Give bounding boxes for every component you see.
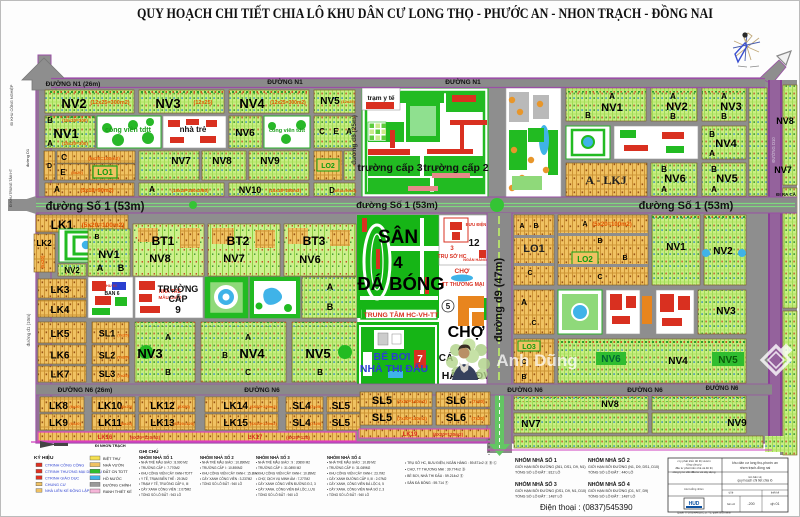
svg-text:NHÓM NHÀ SỐ 1: NHÓM NHÀ SỐ 1 (139, 455, 173, 460)
svg-text:ĐẤT CN TDTT: ĐẤT CN TDTT (103, 470, 128, 474)
svg-text:ĐƯỜNG D10: ĐƯỜNG D10 (771, 137, 776, 163)
svg-text:A - LKJ: A - LKJ (585, 173, 626, 187)
svg-text:NHÓM NHÀ SỐ 3: NHÓM NHÀ SỐ 3 (515, 480, 557, 488)
svg-text:NHÓM NHÀ SỐ 2: NHÓM NHÀ SỐ 2 (200, 455, 234, 460)
svg-text:trạm y tế: trạm y tế (367, 94, 394, 102)
svg-text:quy hoạch chi tiết chia lô: quy hoạch chi tiết chia lô (738, 479, 773, 483)
svg-text:TỔNG SỐ LÔ ĐẤT : 812 LÔ: TỔNG SỐ LÔ ĐẤT : 812 LÔ (515, 470, 560, 475)
svg-text:nhà trẻ: nhà trẻ (180, 125, 207, 134)
svg-text:GIỚI HẠN BỞI ĐƯỜNG (DS1, D9, N: GIỚI HẠN BỞI ĐƯỜNG (DS1, D9, N1, D10) (515, 488, 586, 493)
svg-text:B: B (317, 368, 323, 377)
svg-text:RANH THIẾT KẾ: RANH THIẾT KẾ (103, 489, 132, 494)
svg-text:Điện thoại : (0837)545390: Điện thoại : (0837)545390 (540, 503, 633, 512)
svg-text:LK7: LK7 (51, 370, 70, 381)
svg-text:• KHU CÔNG VIÊN CÂY XANH : 23.: • KHU CÔNG VIÊN CÂY XANH : 23.7M2 (327, 470, 385, 475)
svg-text:(5x20=100m2): (5x20=100m2) (592, 222, 632, 228)
svg-text:A: A (609, 92, 615, 101)
svg-text:A: A (97, 263, 104, 273)
svg-text:NV8: NV8 (212, 156, 232, 167)
svg-text:ĐƯỜNG N6: ĐƯỜNG N6 (706, 384, 739, 392)
svg-text:đường Số 1 (53m): đường Số 1 (53m) (46, 201, 145, 213)
svg-text:(6X20=120m2): (6X20=120m2) (433, 432, 464, 437)
svg-text:B: B (521, 374, 526, 381)
svg-text:(6X20): (6X20) (178, 404, 191, 409)
svg-text:E: E (60, 168, 66, 177)
svg-text:• TRƯỜNG CẤP I : 31.0890 M2: • TRƯỜNG CẤP I : 31.0890 M2 (256, 465, 301, 470)
svg-text:CẤP: CẤP (168, 294, 187, 304)
svg-text:D: D (47, 163, 52, 170)
svg-text:• NHÀ TRẺ MẪU GIÁO : 10.890M2: • NHÀ TRẺ MẪU GIÁO : 10.890M2 (200, 460, 250, 465)
svg-text:BAN 6: BAN 6 (104, 291, 119, 297)
svg-text:(7x20): (7x20) (310, 421, 322, 426)
svg-text:• TRƯỜNG CẤP I : 7.770M2: • TRƯỜNG CẤP I : 7.770M2 (139, 465, 180, 470)
svg-text:A: A (54, 185, 60, 194)
svg-text:SL5: SL5 (372, 412, 392, 424)
svg-text:LK19: LK19 (403, 432, 418, 438)
svg-text:BỂ BƠI: BỂ BƠI (374, 350, 411, 363)
svg-text:C: C (61, 153, 67, 162)
svg-text:ĐƯỜNG N1: ĐƯỜNG N1 (445, 77, 481, 86)
svg-text:ĐÁ BÓNG: ĐÁ BÓNG (357, 273, 444, 294)
svg-text:ĐI NHƠN TRẠCH: ĐI NHƠN TRẠCH (95, 444, 126, 448)
svg-text:LK15: LK15 (223, 418, 248, 429)
svg-text:A: A (670, 92, 676, 101)
svg-text:NV10: NV10 (239, 185, 262, 195)
svg-text:SL4: SL4 (292, 418, 311, 429)
svg-text:A: A (711, 185, 717, 194)
svg-text:NHÓM NHÀ SỐ 2: NHÓM NHÀ SỐ 2 (588, 456, 630, 464)
svg-text:(8x18=90m2): (8x18=90m2) (334, 189, 358, 193)
svg-text:CHỢ: CHỢ (455, 268, 470, 275)
svg-text:đường d8 (25m): đường d8 (25m) (351, 115, 358, 165)
svg-text:(5x20=100m2): (5x20=100m2) (82, 222, 125, 229)
svg-text:NV4: NV4 (715, 138, 737, 150)
svg-text:A: A (661, 185, 667, 194)
svg-text:tỷ lệ: tỷ lệ (729, 491, 734, 495)
svg-text:NV1: NV1 (53, 126, 78, 141)
svg-text:(7x25): (7x25) (117, 333, 129, 338)
svg-text:B: B (622, 255, 627, 262)
svg-text:GIỚI HẠN BỞI ĐƯỜNG (D1, N7, D9: GIỚI HẠN BỞI ĐƯỜNG (D1, N7, D9) (588, 488, 648, 493)
svg-text:• TỔNG SỐ LÔ ĐẤT : 940 LÔ: • TỔNG SỐ LÔ ĐẤT : 940 LÔ (200, 481, 243, 486)
svg-text:• TRẠM Y TẾ, TRƯỜNG CẤP II, II: • TRẠM Y TẾ, TRƯỜNG CẤP II, III (139, 481, 189, 486)
svg-text:(5x18=90m2): (5x18=90m2) (80, 188, 113, 194)
svg-text:(7x25): (7x25) (117, 354, 129, 359)
svg-text:qh 01: qh 01 (771, 502, 780, 506)
svg-text:NV3: NV3 (716, 306, 736, 317)
svg-text:NHÓM NHÀ SỐ 4: NHÓM NHÀ SỐ 4 (588, 480, 630, 488)
svg-text:kts trưởng nhóm: kts trưởng nhóm (684, 487, 703, 491)
svg-text:(7x20=140m2): (7x20=140m2) (397, 416, 427, 421)
svg-text:SL6: SL6 (446, 412, 466, 424)
svg-text:• CHỢ, TT THƯƠNG MẠI : 39.774x: • CHỢ, TT THƯƠNG MẠI : 39.774x2 Ⓓ (405, 467, 466, 472)
svg-text:NV7: NV7 (774, 165, 792, 175)
svg-text:công ty tư vấn đầu tư và xây d: công ty tư vấn đầu tư và xây dựng (673, 470, 716, 474)
svg-text:SL5: SL5 (332, 401, 351, 412)
svg-text:BT2: BT2 (227, 234, 250, 248)
svg-text:THU VI: THU VI (103, 283, 116, 288)
svg-text:NV6: NV6 (664, 173, 685, 185)
svg-text:SÂN: SÂN (378, 226, 418, 248)
svg-text:• KHU CÔNG VIÊN CÂY XANH : 10.: • KHU CÔNG VIÊN CÂY XANH : 10.89M2 (256, 470, 316, 475)
svg-text:LO2: LO2 (321, 163, 335, 170)
svg-text:(5x20): (5x20) (40, 255, 45, 269)
svg-text:B: B (709, 130, 715, 139)
svg-text:A: A (709, 149, 715, 158)
svg-text:ĐƯỜNG N1: ĐƯỜNG N1 (267, 77, 303, 86)
svg-text:ĐƯỜNG CHÍNH: ĐƯỜNG CHÍNH (103, 482, 131, 487)
svg-text:(7x25): (7x25) (117, 373, 129, 378)
svg-text:• SÂN ĐÁ BÓNG : 59.714 Ⓕ: • SÂN ĐÁ BÓNG : 59.714 Ⓕ (405, 480, 449, 485)
svg-text:LO1: LO1 (97, 168, 113, 177)
svg-text:(5x20): (5x20) (71, 170, 83, 175)
svg-text:(12x25): (12x25) (341, 99, 355, 104)
svg-text:B: B (118, 263, 125, 273)
svg-text:NV4: NV4 (239, 96, 265, 111)
svg-text:NHÓM NHÀ SỐ 1: NHÓM NHÀ SỐ 1 (515, 456, 557, 464)
svg-text:đường d9 (47m): đường d9 (47m) (493, 258, 505, 343)
svg-text:LK12: LK12 (150, 401, 175, 412)
svg-text:4: 4 (393, 253, 403, 272)
svg-text:LK10: LK10 (98, 401, 123, 412)
svg-text:(12x25=300m2): (12x25=300m2) (270, 100, 306, 106)
svg-text:(6x20): (6x20) (121, 421, 133, 426)
svg-text:ĐI KHU CÔNG NGHIỆP: ĐI KHU CÔNG NGHIỆP (9, 84, 14, 125)
svg-text:B: B (94, 234, 99, 241)
svg-text:NV3: NV3 (137, 346, 162, 361)
svg-text:LK6: LK6 (51, 351, 70, 362)
svg-text:NV9: NV9 (727, 418, 747, 429)
svg-text:(12x25): (12x25) (194, 100, 213, 106)
svg-text:C: C (531, 320, 536, 327)
svg-text:BIỆT THỰ: BIỆT THỰ (103, 456, 121, 461)
svg-text:-200: -200 (747, 502, 754, 506)
svg-text:TỔNG SỐ LÔ ĐẤT : 1487 LÔ: TỔNG SỐ LÔ ĐẤT : 1487 LÔ (588, 494, 635, 499)
svg-text:• TỔNG SỐ LÔ ĐẤT : 940 LÔ: • TỔNG SỐ LÔ ĐẤT : 940 LÔ (327, 492, 370, 497)
svg-text:A: A (149, 185, 155, 194)
svg-text:SL2: SL2 (99, 350, 116, 360)
svg-text:(15x18=280m2): (15x18=280m2) (269, 188, 302, 193)
svg-text:(15x18=280x2/80): (15x18=280x2/80) (172, 188, 209, 193)
svg-text:NV5: NV5 (718, 355, 738, 366)
svg-text:NHÀ THI ĐẤU: NHÀ THI ĐẤU (360, 362, 428, 375)
svg-text:• NHÀ TRẺ MẪU GIÁO : 8.900 M2: • NHÀ TRẺ MẪU GIÁO : 8.900 M2 (139, 460, 188, 465)
svg-text:A: A (721, 92, 727, 101)
svg-text:LK17: LK17 (248, 435, 263, 441)
svg-text:• BỂ BƠI, NHÀ THI ĐẤU : 59.214: • BỂ BƠI, NHÀ THI ĐẤU : 59.214x2 Ⓔ (405, 473, 464, 478)
svg-text:LK3: LK3 (51, 285, 70, 296)
svg-text:(6X20+120m2): (6X20+120m2) (250, 404, 277, 409)
svg-text:• NHÀ TRẺ MẪU GIÁO : 10.89 M2: • NHÀ TRẺ MẪU GIÁO : 10.89 M2 (327, 460, 376, 465)
svg-text:C: C (319, 127, 325, 136)
svg-text:• KHU CÔNG VIÊN CÂY XANH TDTT: • KHU CÔNG VIÊN CÂY XANH TDTT (139, 470, 193, 475)
svg-text:A: A (521, 298, 527, 307)
svg-text:NGÂN HÀNG: NGÂN HÀNG (463, 257, 486, 262)
svg-text:LK11: LK11 (98, 418, 122, 429)
svg-text:đường Số 1 (53m): đường Số 1 (53m) (639, 200, 734, 212)
svg-text:• CÂY XANH, CÔNG VIÊN ĐÁ LỘC,: • CÂY XANH, CÔNG VIÊN ĐÁ LỘC, LƯU (256, 487, 316, 492)
svg-text:(6X20+120m2): (6X20+120m2) (250, 421, 277, 426)
svg-text:ĐI KHU TRUNG TÂM HT: ĐI KHU TRUNG TÂM HT (9, 169, 13, 207)
svg-text:NV2: NV2 (64, 266, 80, 275)
svg-text:NV1: NV1 (98, 249, 119, 261)
svg-text:đường d1 (10m): đường d1 (10m) (26, 313, 31, 346)
svg-text:NV5: NV5 (716, 173, 737, 185)
svg-text:GIỚI HẠN BỞI ĐƯỜNG (261, DS1,: GIỚI HẠN BỞI ĐƯỜNG (261, DS1, D9, N1) (515, 464, 586, 469)
svg-text:LO3: LO3 (522, 344, 536, 351)
svg-text:đường D1: đường D1 (25, 148, 30, 167)
svg-text:CHỢ: CHỢ (448, 324, 485, 341)
svg-text:(15x20=300): (15x20=300) (62, 141, 88, 146)
svg-text:đường Số 1 (53m): đường Số 1 (53m) (356, 200, 438, 211)
svg-text:A: A (165, 333, 171, 342)
svg-text:NV8: NV8 (149, 253, 170, 265)
svg-text:NV7: NV7 (521, 419, 541, 430)
svg-text:NHÓM NHÀ SỐ 3: NHÓM NHÀ SỐ 3 (256, 455, 290, 460)
svg-text:TRƯỜNG: TRƯỜNG (158, 283, 199, 294)
svg-text:• CHỢ, DỊCH VỤ MINH ẨM : 7.277: • CHỢ, DỊCH VỤ MINH ẨM : 7.277M2 (256, 476, 310, 481)
svg-text:SL6: SL6 (446, 395, 466, 407)
svg-text:NV7: NV7 (223, 253, 244, 265)
svg-text:khu dân cư long thọ-phước an: khu dân cư long thọ-phước an (732, 461, 778, 465)
svg-text:NHÓM NHÀ SỐ 4: NHÓM NHÀ SỐ 4 (327, 455, 361, 460)
svg-text:thiết kế: thiết kế (771, 491, 780, 495)
svg-text:CHUNG CƯ: CHUNG CƯ (45, 483, 67, 487)
svg-text:• TỔNG SỐ LÔ ĐẤT : 943 LÔ: • TỔNG SỐ LÔ ĐẤT : 943 LÔ (139, 492, 182, 497)
svg-text:LK8: LK8 (49, 401, 68, 412)
svg-text:ĐƯỜNG N6: ĐƯỜNG N6 (627, 385, 663, 394)
svg-text:trường cấp 2: trường cấp 2 (423, 162, 488, 174)
svg-text:12: 12 (468, 238, 480, 249)
svg-text:C: C (597, 274, 602, 281)
svg-text:QUY HOẠCH CHI TIẾT CHIA LÔ KHU: QUY HOẠCH CHI TIẾT CHIA LÔ KHU DÂN CƯ LO… (137, 4, 713, 22)
svg-text:NV6: NV6 (299, 254, 320, 266)
svg-text:NV1: NV1 (666, 242, 686, 253)
svg-text:• Y TẾ, TRẠM BIẾN THẾ : 29.3M2: • Y TẾ, TRẠM BIẾN THẾ : 29.3M2 (139, 476, 188, 481)
svg-text:• TRỤ SỞ HC, BƯU ĐIỆN, NGÂN HÀ: • TRỤ SỞ HC, BƯU ĐIỆN, NGÂN HÀNG : 59.87… (405, 460, 497, 465)
svg-text:A: A (47, 139, 53, 148)
svg-text:LO2: LO2 (577, 255, 593, 264)
svg-text:Anh Dũng: Anh Dũng (496, 351, 577, 370)
svg-text:(6X20=120m2): (6X20=120m2) (130, 435, 161, 440)
svg-text:5: 5 (446, 302, 451, 311)
svg-text:CTRINH CÔNG CỘNG: CTRINH CÔNG CỘNG (45, 463, 84, 468)
svg-text:NV4: NV4 (668, 356, 688, 367)
svg-text:NV2: NV2 (61, 96, 86, 111)
svg-text:trường cấp 3: trường cấp 3 (357, 162, 422, 174)
svg-text:B: B (165, 368, 171, 377)
svg-text:(7x25): (7x25) (310, 404, 322, 409)
svg-text:(7x20=140m2): (7x20=140m2) (397, 399, 427, 404)
svg-text:(6x20): (6x20) (69, 404, 81, 409)
svg-text:công viên tdtt: công viên tdtt (269, 128, 305, 134)
svg-text:• CÂY XANH, CÔNG VIÊN ĐÁ LỘC 6: • CÂY XANH, CÔNG VIÊN ĐÁ LỘC 6, 5 (327, 481, 384, 486)
svg-text:• NHÀ TRẺ MẪU GIÁO : 9 : 20890: • NHÀ TRẺ MẪU GIÁO : 9 : 20890 M2 (256, 460, 310, 465)
svg-text:9: 9 (175, 305, 181, 316)
svg-text:(6X20=120): (6X20=120) (286, 435, 310, 440)
svg-text:• CÂY XANH, CÔNG VIÊN NHÀ SỐ 2: • CÂY XANH, CÔNG VIÊN NHÀ SỐ 2, 3 (327, 487, 384, 492)
svg-text:GIỚI HẠN BỞI ĐƯỜNG (N1, D9, DS: GIỚI HẠN BỞI ĐƯỜNG (N1, D9, DS1, D10) (588, 464, 659, 469)
svg-text:B: B (721, 112, 727, 121)
svg-text:ĐƯỜNG N6 (26m): ĐƯỜNG N6 (26m) (58, 385, 113, 394)
svg-text:NV6: NV6 (601, 354, 621, 365)
svg-text:BT3: BT3 (303, 234, 326, 248)
svg-text:A: A (327, 282, 334, 292)
svg-text:A: A (245, 333, 251, 342)
svg-text:NHÀ VƯỜN: NHÀ VƯỜN (103, 463, 124, 468)
svg-text:NV6: NV6 (235, 128, 255, 139)
svg-text:HỒ NƯỚC: HỒ NƯỚC (103, 476, 122, 481)
svg-text:• CÂY XANH CÔNG VIÊN : 3.237M2: • CÂY XANH CÔNG VIÊN : 3.237M2 (200, 476, 252, 481)
svg-text:SL1: SL1 (99, 329, 116, 339)
svg-text:B: B (533, 223, 538, 230)
svg-text:BT1: BT1 (152, 234, 175, 248)
svg-text:(7x20): (7x20) (471, 399, 485, 404)
svg-text:LK13: LK13 (150, 418, 175, 429)
svg-text:SL3: SL3 (99, 369, 116, 379)
svg-text:B: B (222, 351, 228, 360)
svg-text:B: B (327, 302, 334, 312)
svg-text:SL5: SL5 (332, 418, 351, 429)
svg-text:(6x20): (6x20) (121, 404, 133, 409)
svg-text:(6x20): (6x20) (69, 421, 81, 426)
svg-text:LK9: LK9 (49, 418, 68, 429)
svg-text:LK4: LK4 (51, 305, 70, 316)
svg-text:(7x20): (7x20) (471, 416, 485, 421)
svg-text:CTRINH GIÁO DỤC: CTRINH GIÁO DỤC (45, 476, 79, 480)
svg-text:công viên tdtt: công viên tdtt (105, 127, 152, 134)
svg-text:E: E (333, 127, 339, 136)
svg-text:ĐƯỜNG N1 (26m): ĐƯỜNG N1 (26m) (46, 79, 101, 88)
svg-text:(5x20=100m2): (5x20=100m2) (88, 156, 120, 162)
svg-text:LK14: LK14 (223, 401, 248, 412)
svg-text:A: A (519, 223, 524, 230)
svg-text:bản vẽ: bản vẽ (727, 502, 735, 506)
svg-text:• TỔNG SỐ LÔ ĐẤT : 940 LÔ: • TỔNG SỐ LÔ ĐẤT : 940 LÔ (256, 492, 299, 497)
svg-text:NV9: NV9 (260, 156, 280, 167)
svg-text:NHÀ LIÊN KẾ ĐỘNG LẬP: NHÀ LIÊN KẾ ĐỘNG LẬP (45, 488, 90, 493)
svg-text:NV2: NV2 (713, 246, 733, 257)
svg-text:NV7: NV7 (171, 156, 191, 167)
svg-text:B: B (670, 112, 676, 121)
svg-text:NV8: NV8 (776, 116, 794, 126)
svg-text:• TRƯỜNG CẤP I : 10.890M2: • TRƯỜNG CẤP I : 10.890M2 (200, 465, 243, 470)
svg-text:nhơn trạch-đồng nai: nhơn trạch-đồng nai (740, 466, 771, 470)
svg-text:ĐƯỜNG N6: ĐƯỜNG N6 (244, 385, 280, 394)
svg-text:SL5: SL5 (372, 395, 392, 407)
svg-text:NV4: NV4 (239, 346, 265, 361)
svg-text:TRUNG TÂM HC-VH-TT: TRUNG TÂM HC-VH-TT (364, 310, 440, 319)
svg-text:TT THƯƠNG MẠI: TT THƯƠNG MẠI (442, 282, 485, 288)
svg-text:ĐƯỜNG N6: ĐƯỜNG N6 (507, 385, 543, 394)
svg-text:LK5: LK5 (51, 329, 70, 340)
svg-text:LK2: LK2 (36, 239, 52, 248)
svg-text:BƯU ĐIỆN: BƯU ĐIỆN (466, 222, 487, 227)
svg-text:GHI CHÚ: GHI CHÚ (139, 448, 159, 454)
svg-text:LK16: LK16 (98, 435, 113, 441)
svg-text:LO1: LO1 (523, 243, 544, 255)
svg-text:C: C (245, 368, 251, 377)
svg-text:TỔNG SỐ LÔ ĐẤT : 440 LÔ: TỔNG SỐ LÔ ĐẤT : 440 LÔ (588, 470, 633, 475)
svg-text:(12x25=300m2): (12x25=300m2) (90, 100, 129, 106)
svg-text:NV3: NV3 (155, 96, 180, 111)
svg-text:• CÂY XANH CÔNG VIÊN ĐƯỜNG Đ 2: • CÂY XANH CÔNG VIÊN ĐƯỜNG Đ 2, 3 (256, 481, 316, 486)
svg-text:• KHU CÔNG VIÊN CÂY XANH : 15.: • KHU CÔNG VIÊN CÂY XANH : 15.8M2 (200, 470, 258, 475)
svg-text:B: B (585, 111, 591, 120)
svg-text:(6X20=120): (6X20=120) (173, 421, 195, 426)
svg-text:A: A (582, 221, 587, 228)
svg-text:SL4: SL4 (292, 401, 311, 412)
svg-text:NV1: NV1 (601, 102, 622, 114)
svg-text:TỔNG SỐ LÔ ĐẤT : 1487 LÔ: TỔNG SỐ LÔ ĐẤT : 1487 LÔ (515, 494, 562, 499)
svg-text:C: C (527, 270, 532, 277)
svg-text:NV5: NV5 (320, 96, 340, 107)
svg-text:• CÂY XANH CÔNG VIÊN : 2.075M2: • CÂY XANH CÔNG VIÊN : 2.075M2 (139, 487, 191, 492)
svg-text:• CÂY XANH ĐƯỜNG CẤP II, III :: • CÂY XANH ĐƯỜNG CẤP II, III : 2.07M2 (327, 476, 387, 481)
svg-text:B: B (597, 238, 602, 245)
svg-text:• TRƯỜNG CẤP II : 31.089M2: • TRƯỜNG CẤP II : 31.089M2 (327, 465, 371, 470)
svg-text:NV5: NV5 (305, 346, 330, 361)
svg-text:ĐI RA CẦ: ĐI RA CẦ (776, 191, 797, 197)
